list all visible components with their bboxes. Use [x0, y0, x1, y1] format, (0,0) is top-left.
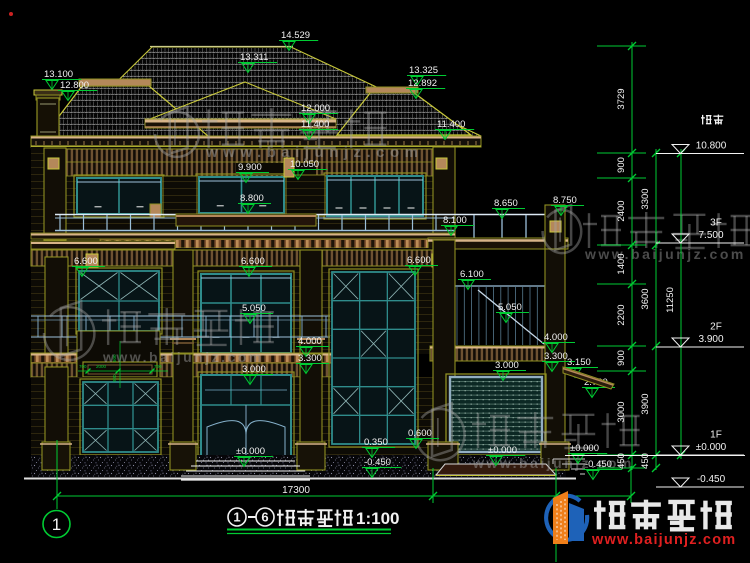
svg-text:10.800: 10.800 [696, 141, 727, 152]
svg-text:±0.000: ±0.000 [488, 445, 517, 456]
svg-text:11.400: 11.400 [437, 119, 465, 130]
svg-text:6.600: 6.600 [407, 255, 431, 266]
svg-text:3.000: 3.000 [242, 364, 266, 375]
svg-text:3900: 3900 [640, 393, 651, 414]
svg-text:4.000: 4.000 [298, 336, 322, 347]
svg-text:12.800: 12.800 [60, 80, 89, 91]
svg-text:6.600: 6.600 [74, 256, 98, 267]
svg-text:3.000: 3.000 [495, 360, 519, 371]
svg-text:5.050: 5.050 [498, 302, 522, 313]
svg-text:8.800: 8.800 [240, 193, 264, 204]
svg-text:3300: 3300 [640, 188, 651, 209]
svg-text:±0.000: ±0.000 [236, 446, 265, 457]
svg-text:2200: 2200 [616, 304, 627, 325]
svg-text:8.650: 8.650 [494, 198, 518, 209]
svg-text:0.350: 0.350 [364, 437, 388, 448]
svg-text:8.100: 8.100 [443, 215, 467, 226]
svg-text:700: 700 [79, 364, 87, 369]
svg-text:6.600: 6.600 [241, 256, 265, 267]
svg-text:5.050: 5.050 [242, 303, 266, 314]
svg-text:1:100: 1:100 [356, 509, 399, 528]
svg-text:11.400: 11.400 [301, 119, 329, 130]
svg-text:±0.000: ±0.000 [696, 442, 727, 453]
svg-text:2400: 2400 [616, 200, 627, 221]
svg-text:8.750: 8.750 [553, 195, 577, 206]
svg-text:12.000: 12.000 [301, 103, 330, 114]
svg-text:3000: 3000 [616, 401, 627, 422]
svg-text:-0.450: -0.450 [364, 457, 391, 468]
svg-text:1: 1 [52, 515, 61, 534]
svg-text:13.311: 13.311 [240, 52, 268, 63]
svg-text:900: 900 [616, 157, 627, 173]
svg-text:1F: 1F [710, 430, 722, 441]
svg-text:6.100: 6.100 [460, 269, 484, 280]
svg-text:3.300: 3.300 [544, 351, 568, 362]
svg-text:1: 1 [233, 510, 240, 525]
svg-text:9.900: 9.900 [238, 162, 262, 173]
svg-text:www.baijunjz.com: www.baijunjz.com [102, 349, 264, 365]
svg-text:3729: 3729 [616, 88, 627, 109]
svg-text:www.baijunjz.com: www.baijunjz.com [584, 246, 746, 262]
svg-text:3600: 3600 [640, 288, 651, 309]
svg-text:17300: 17300 [282, 485, 310, 496]
svg-text:11250: 11250 [665, 287, 676, 313]
svg-text:7.500: 7.500 [698, 230, 723, 241]
svg-text:3.300: 3.300 [298, 353, 322, 364]
svg-text:6: 6 [261, 510, 268, 525]
svg-text:0.600: 0.600 [408, 428, 432, 439]
svg-text:13.325: 13.325 [409, 65, 438, 76]
svg-text:±0.000: ±0.000 [570, 443, 599, 454]
svg-text:900: 900 [112, 374, 117, 382]
svg-text:1400: 1400 [616, 253, 627, 274]
svg-text:2F: 2F [710, 322, 722, 333]
svg-text:3.900: 3.900 [698, 334, 723, 345]
svg-text:10.050: 10.050 [290, 159, 319, 170]
svg-text:-0.450: -0.450 [697, 474, 726, 485]
svg-text:12.892: 12.892 [408, 78, 437, 89]
svg-text:3F: 3F [710, 218, 722, 229]
svg-text:13.100: 13.100 [44, 69, 73, 80]
svg-text:900: 900 [616, 350, 627, 366]
svg-text:www.baijunjz.com: www.baijunjz.com [591, 532, 736, 548]
svg-text:3.150: 3.150 [567, 357, 591, 368]
svg-text:4.000: 4.000 [544, 332, 568, 343]
svg-text:14.529: 14.529 [281, 30, 310, 41]
